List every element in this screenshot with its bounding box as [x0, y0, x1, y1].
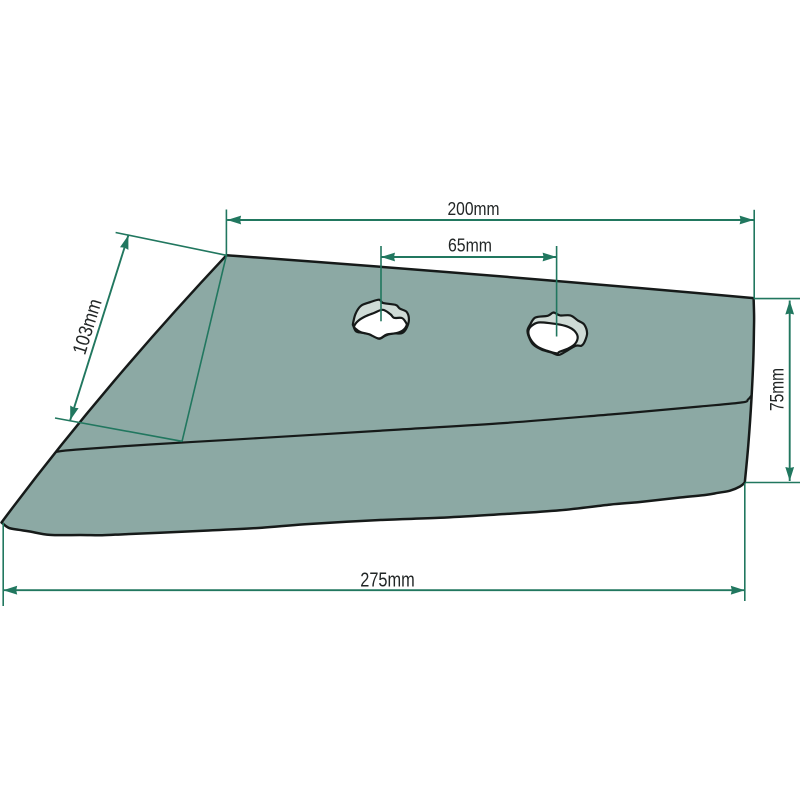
- svg-text:75mm: 75mm: [768, 368, 789, 411]
- svg-text:275mm: 275mm: [360, 570, 415, 592]
- svg-text:65mm: 65mm: [448, 235, 492, 256]
- svg-text:200mm: 200mm: [448, 198, 500, 219]
